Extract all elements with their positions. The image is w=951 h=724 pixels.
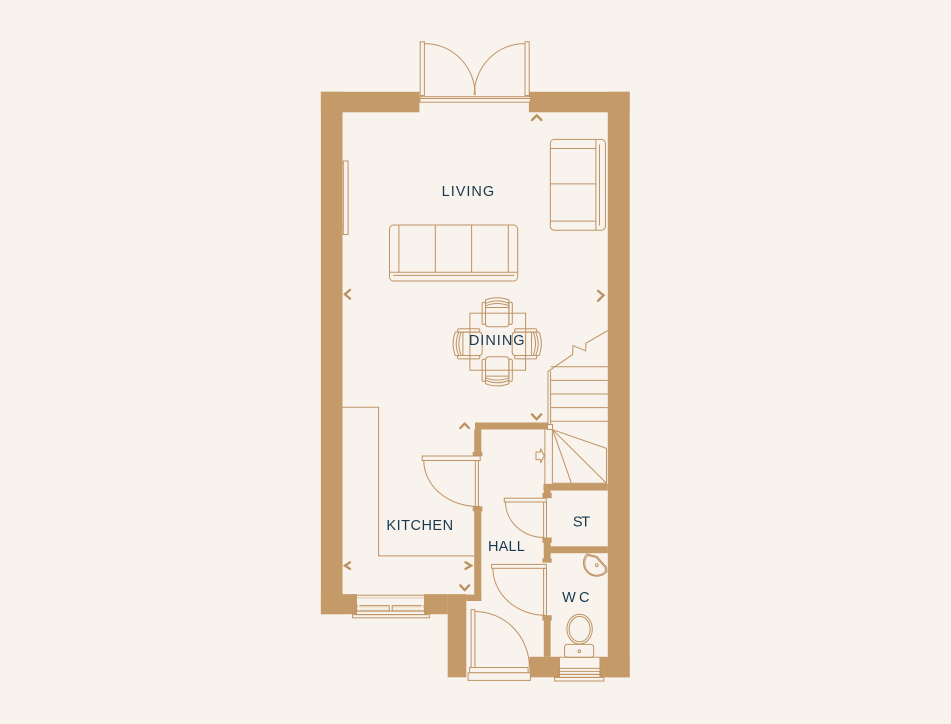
svg-text:DINING: DINING bbox=[469, 333, 526, 349]
svg-text:KITCHEN: KITCHEN bbox=[386, 518, 453, 534]
svg-text:HALL: HALL bbox=[488, 539, 525, 555]
svg-text:ST: ST bbox=[573, 515, 590, 531]
svg-text:LIVING: LIVING bbox=[442, 184, 496, 200]
svg-text:WC: WC bbox=[562, 590, 593, 606]
